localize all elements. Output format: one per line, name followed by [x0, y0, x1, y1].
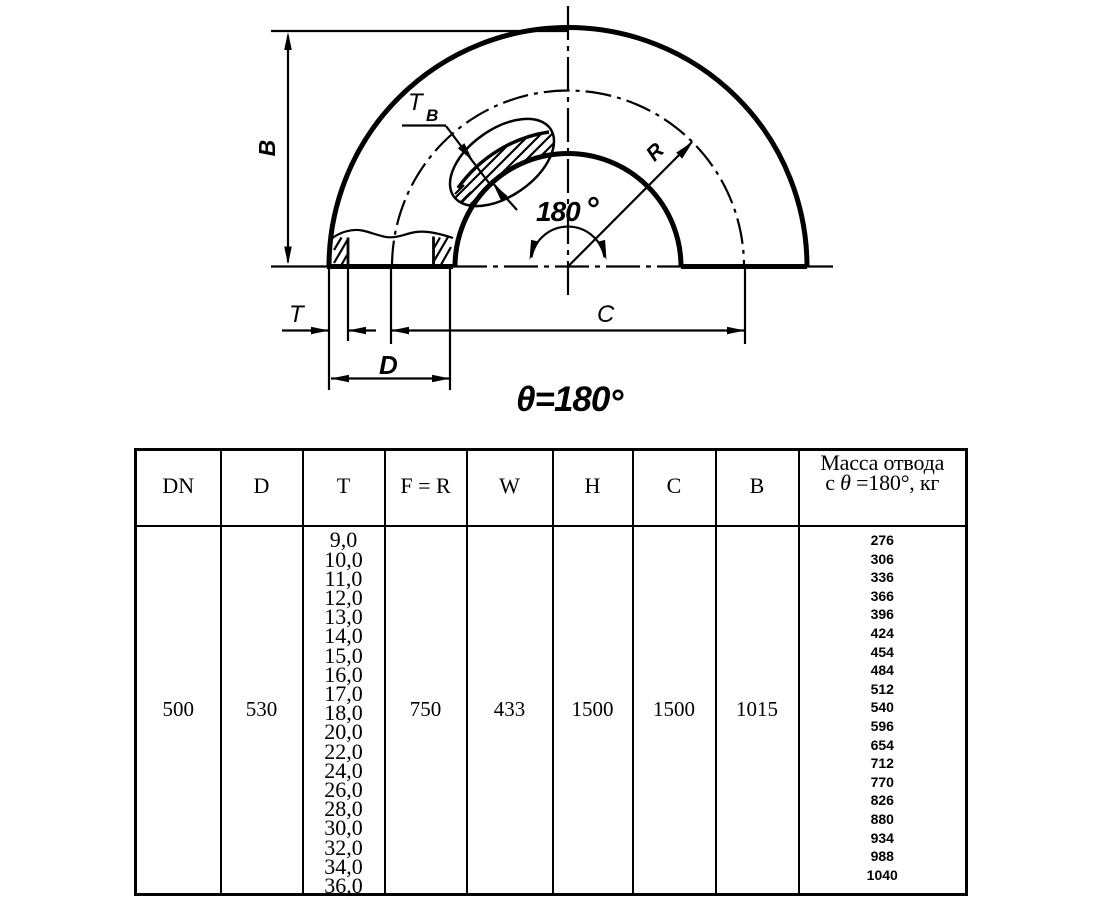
svg-text:B: B [254, 140, 280, 157]
svg-text:180: 180 [536, 196, 581, 227]
svg-text:B: B [426, 106, 438, 125]
svg-text:D: D [379, 350, 398, 380]
svg-text:R: R [642, 138, 670, 166]
svg-text:T: T [289, 301, 306, 328]
svg-text:T: T [408, 89, 425, 116]
svg-text:C: C [597, 301, 615, 328]
svg-text:θ=180: θ=180 [516, 380, 611, 419]
